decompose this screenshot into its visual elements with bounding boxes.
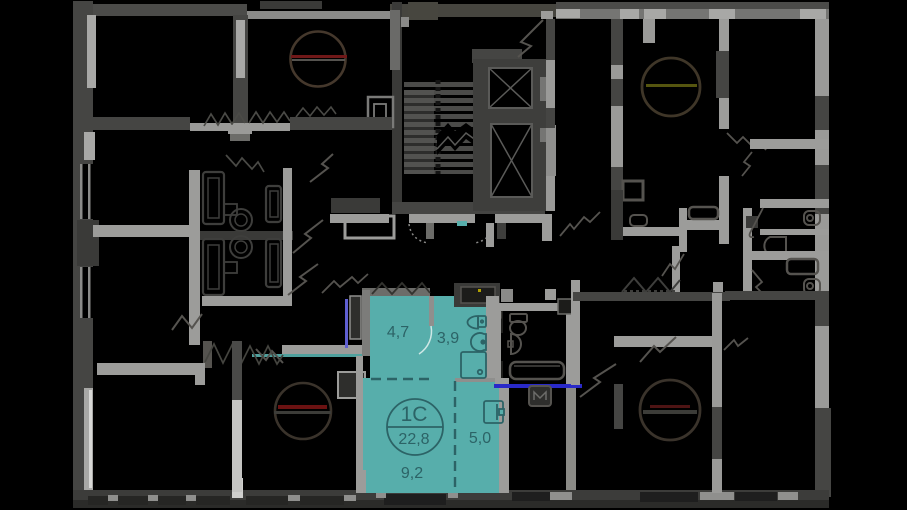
svg-text:9,2: 9,2 (401, 465, 423, 482)
svg-text:4,7: 4,7 (387, 324, 409, 341)
svg-text:5,0: 5,0 (469, 430, 491, 447)
svg-text:3,9: 3,9 (437, 330, 459, 347)
svg-text:1С: 1С (401, 403, 428, 426)
svg-text:22,8: 22,8 (398, 431, 429, 448)
